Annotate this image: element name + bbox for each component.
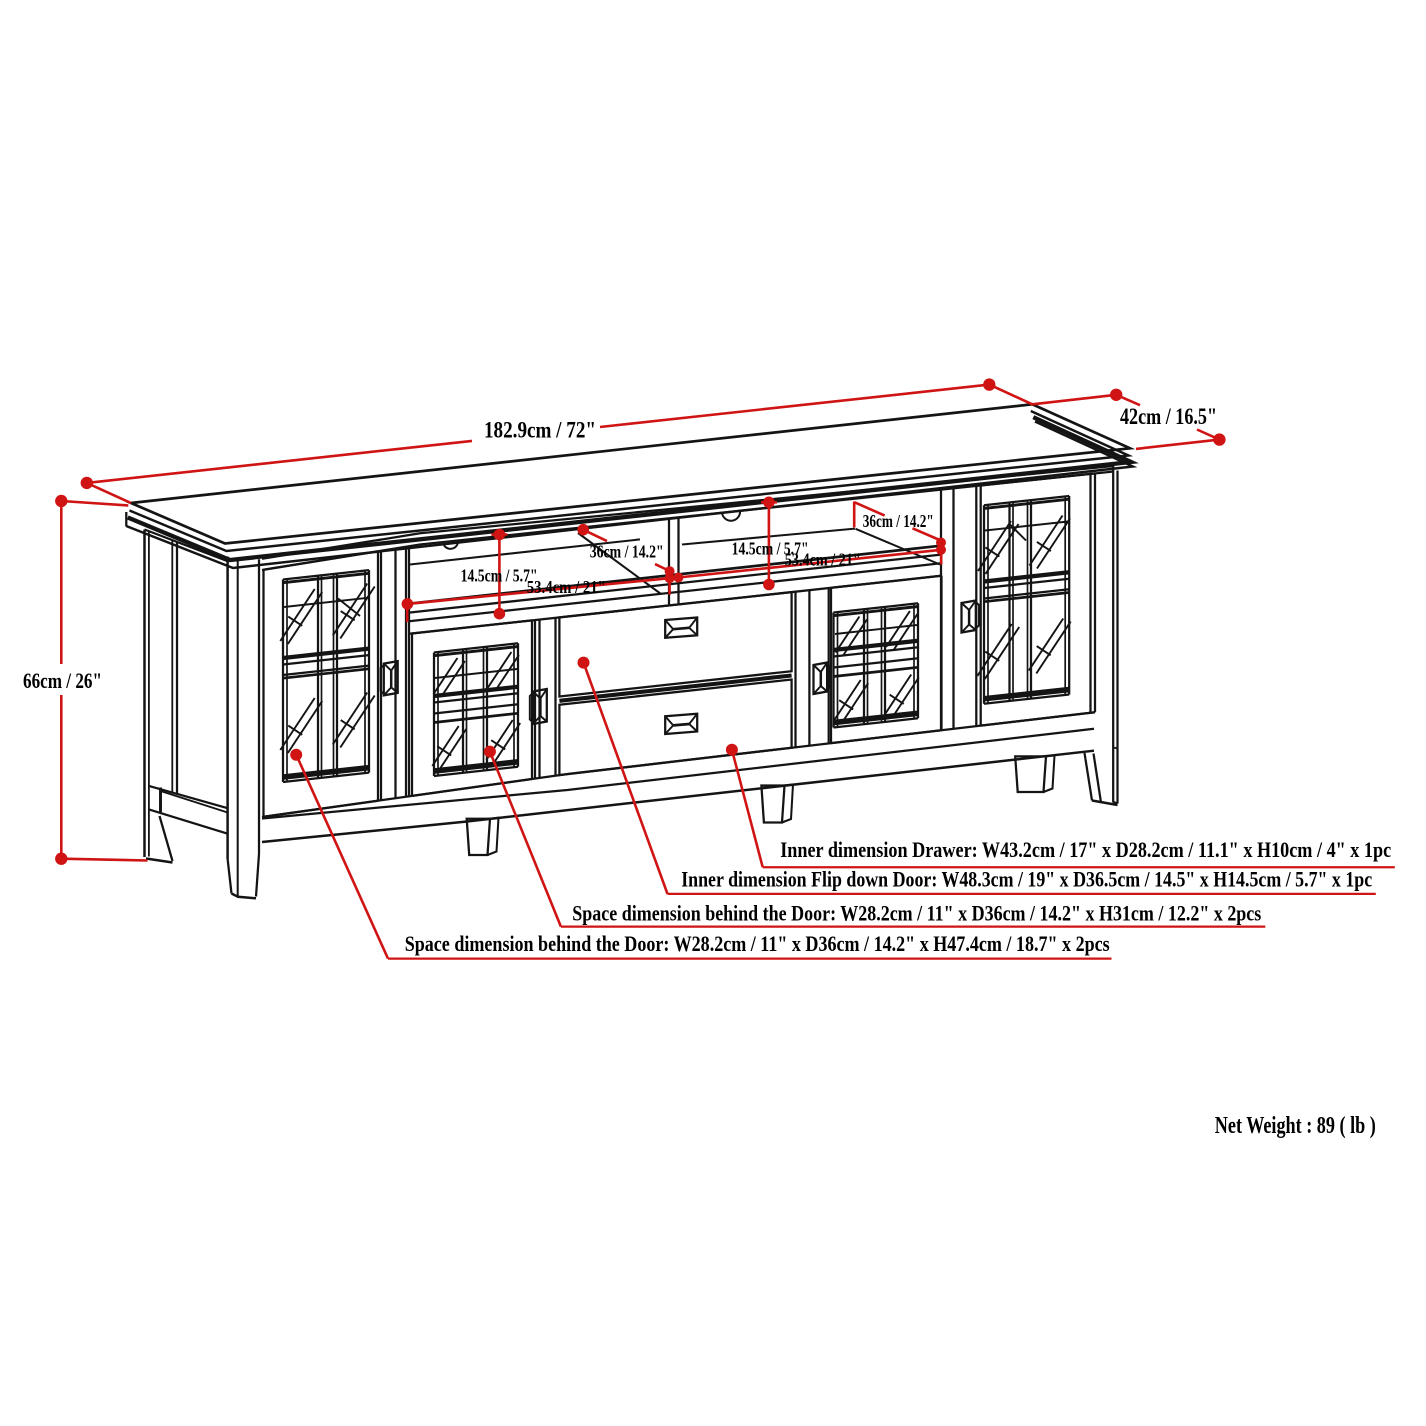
- svg-text:Space dimension behind the Doo: Space dimension behind the Door: W28.2cm…: [572, 901, 1261, 926]
- svg-text:Space dimension behind the Doo: Space dimension behind the Door: W28.2cm…: [405, 931, 1110, 956]
- svg-text:36cm / 14.2": 36cm / 14.2": [590, 542, 664, 562]
- svg-text:36cm / 14.2": 36cm / 14.2": [863, 511, 934, 531]
- svg-text:182.9cm / 72": 182.9cm / 72": [484, 418, 596, 443]
- svg-text:Net Weight : 89 ( lb ): Net Weight : 89 ( lb ): [1215, 1113, 1376, 1139]
- svg-text:Inner dimension Flip down Door: Inner dimension Flip down Door: W48.3cm …: [681, 867, 1372, 892]
- svg-text:53.4cm / 21": 53.4cm / 21": [785, 550, 861, 570]
- svg-text:Inner dimension Drawer: W43.2c: Inner dimension Drawer: W43.2cm / 17" x …: [780, 837, 1391, 862]
- svg-text:42cm / 16.5": 42cm / 16.5": [1120, 404, 1217, 429]
- svg-text:66cm / 26": 66cm / 26": [23, 668, 102, 693]
- svg-text:53.4cm / 21": 53.4cm / 21": [527, 577, 606, 597]
